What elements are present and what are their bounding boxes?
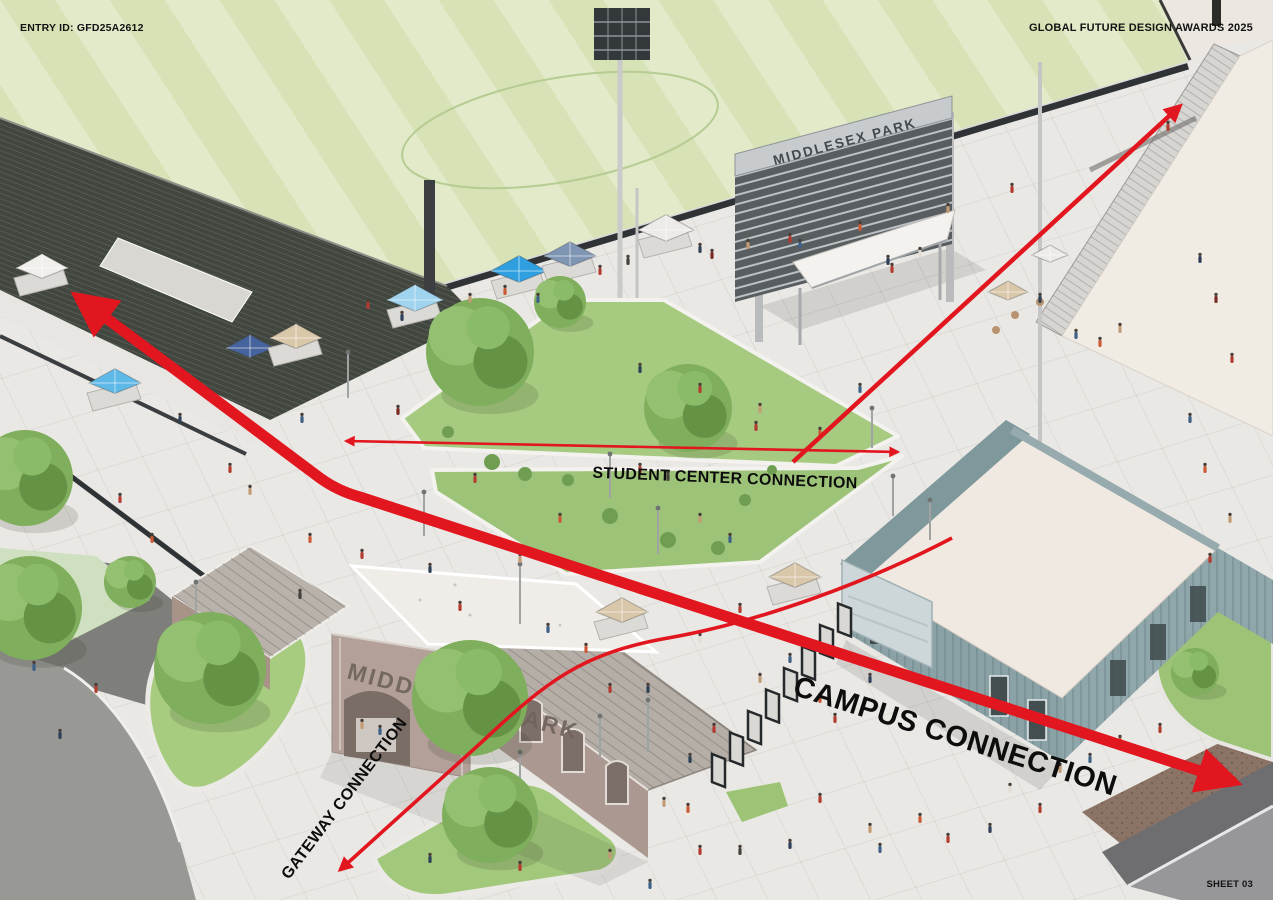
lawn-strip [726,782,788,822]
presentation-sheet: MIDDLESEX PARK [0,0,1273,900]
entry-id: ENTRY ID: GFD25A2612 [20,22,144,34]
award-title: GLOBAL FUTURE DESIGN AWARDS 2025 [1029,22,1253,34]
video-mast [424,180,435,298]
sheet-number: SHEET 03 [1207,879,1253,890]
